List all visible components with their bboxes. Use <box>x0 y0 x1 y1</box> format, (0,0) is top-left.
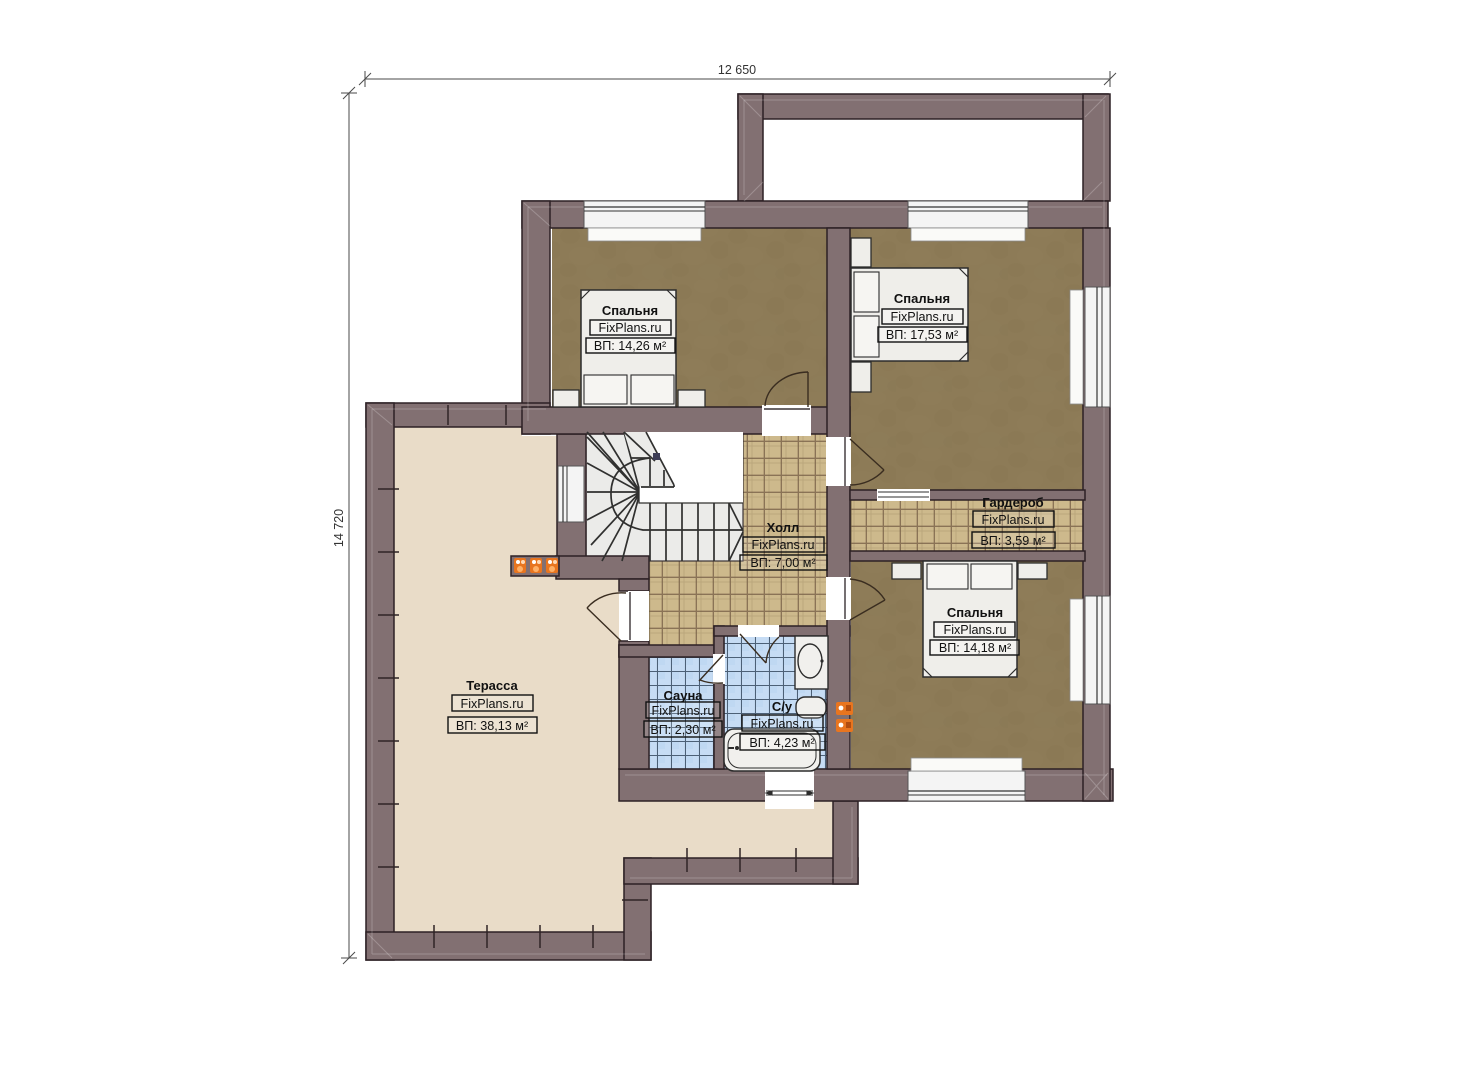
svg-text:Сауна: Сауна <box>663 688 703 703</box>
svg-text:FixPlans.ru: FixPlans.ru <box>752 538 815 552</box>
svg-text:FixPlans.ru: FixPlans.ru <box>652 704 715 718</box>
svg-text:ВП: 3,59 м²: ВП: 3,59 м² <box>980 534 1045 548</box>
svg-text:Спальня: Спальня <box>947 605 1003 620</box>
svg-text:14 720: 14 720 <box>332 509 346 547</box>
svg-text:Спальня: Спальня <box>894 291 950 306</box>
svg-text:ВП: 14,26 м²: ВП: 14,26 м² <box>594 339 666 353</box>
svg-text:FixPlans.ru: FixPlans.ru <box>461 697 524 711</box>
svg-text:ВП: 14,18 м²: ВП: 14,18 м² <box>939 641 1011 655</box>
svg-text:ВП: 7,00 м²: ВП: 7,00 м² <box>750 556 815 570</box>
svg-text:Гардероб: Гардероб <box>982 495 1043 510</box>
svg-text:12 650: 12 650 <box>718 63 756 77</box>
svg-text:FixPlans.ru: FixPlans.ru <box>944 623 1007 637</box>
svg-text:С/у: С/у <box>772 699 793 714</box>
svg-text:FixPlans.ru: FixPlans.ru <box>751 717 814 731</box>
svg-text:ВП: 17,53 м²: ВП: 17,53 м² <box>886 328 958 342</box>
svg-text:FixPlans.ru: FixPlans.ru <box>891 310 954 324</box>
svg-text:ВП: 2,30 м²: ВП: 2,30 м² <box>650 723 715 737</box>
svg-text:FixPlans.ru: FixPlans.ru <box>982 513 1045 527</box>
svg-text:Спальня: Спальня <box>602 303 658 318</box>
svg-text:Терасса: Терасса <box>466 678 518 693</box>
svg-text:ВП: 4,23 м²: ВП: 4,23 м² <box>749 736 814 750</box>
svg-text:Холл: Холл <box>767 520 800 535</box>
svg-text:ВП: 38,13 м²: ВП: 38,13 м² <box>456 719 528 733</box>
svg-text:FixPlans.ru: FixPlans.ru <box>599 321 662 335</box>
